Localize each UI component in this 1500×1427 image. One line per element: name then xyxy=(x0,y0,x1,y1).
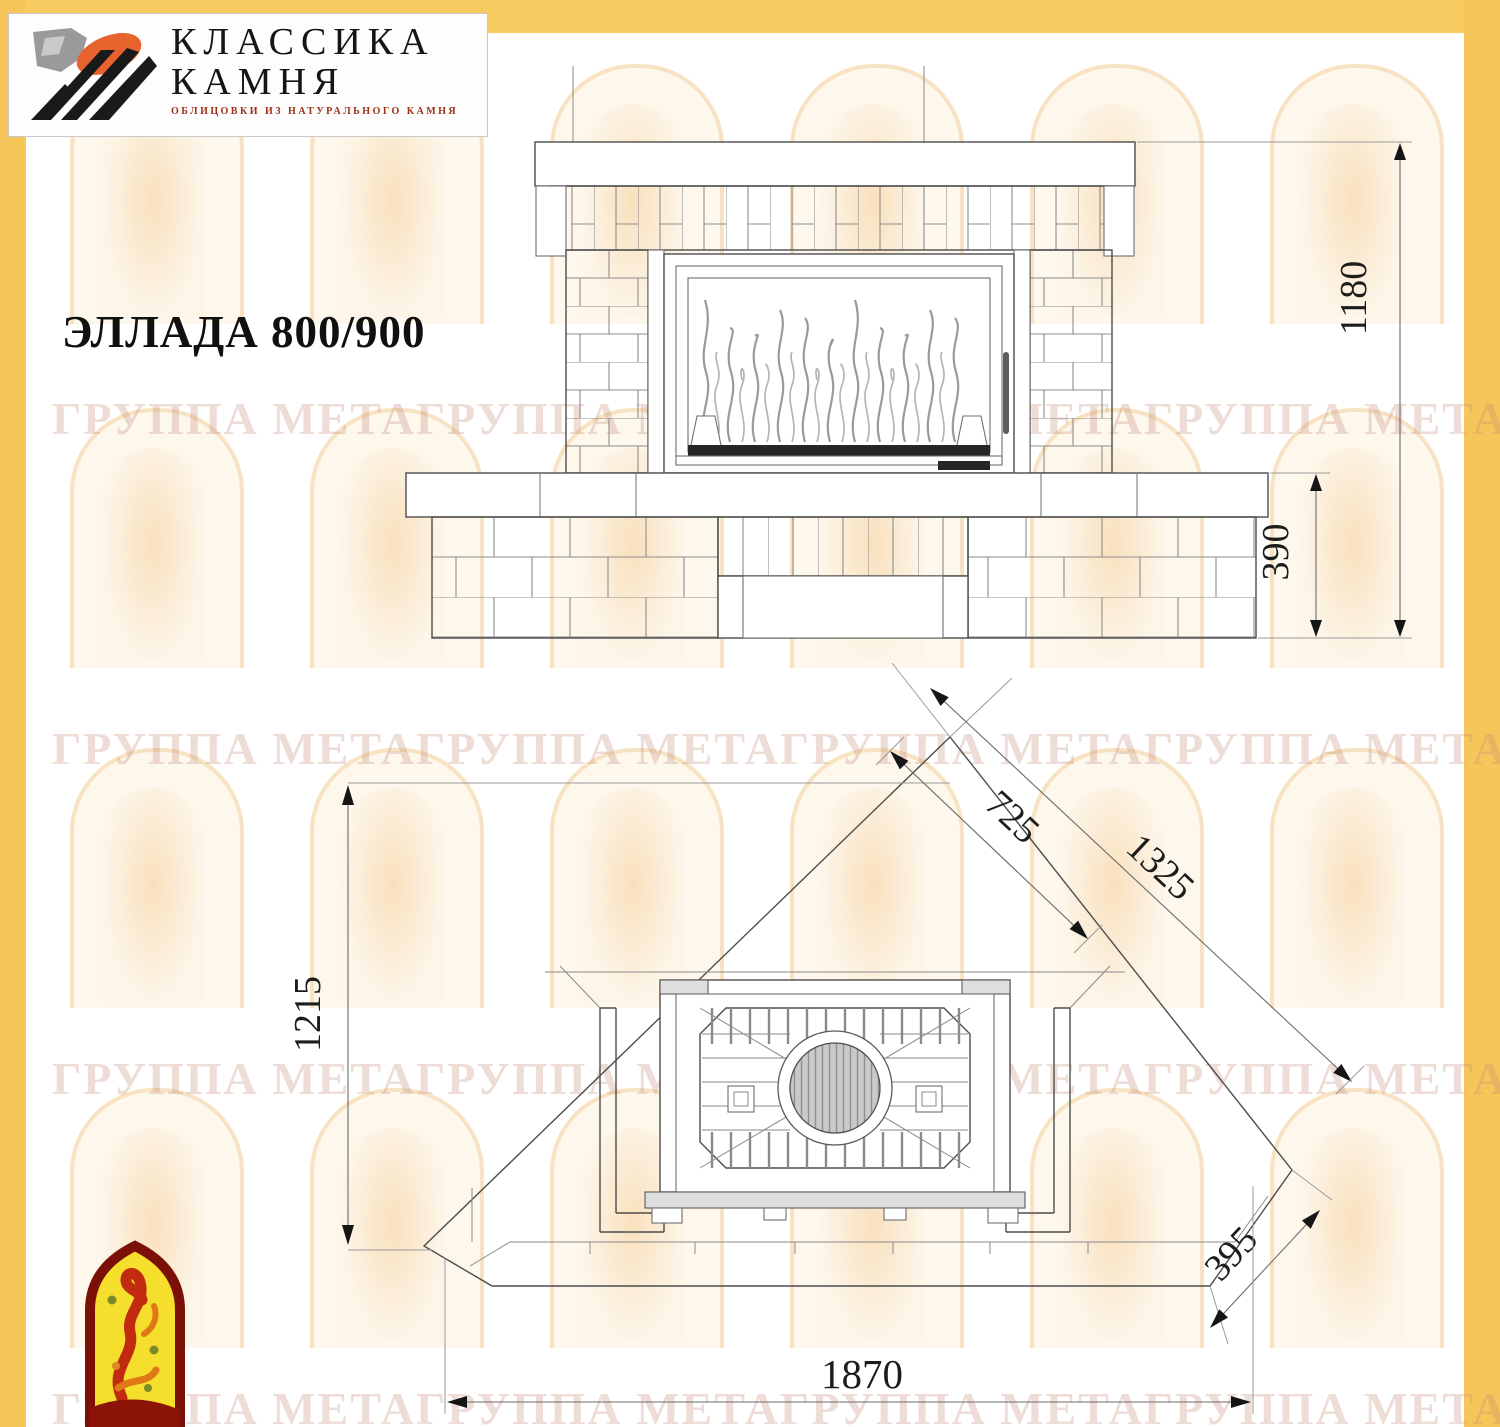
right-brick-column xyxy=(1030,250,1112,473)
front-elevation-drawing xyxy=(406,66,1268,638)
brand-logo: КЛАССИКА КАМНЯ ОБЛИЦОВКИ ИЗ НАТУРАЛЬНОГО… xyxy=(8,13,488,137)
brick-frieze xyxy=(550,186,1120,250)
left-brick-column xyxy=(566,250,648,473)
base-center-brick-band xyxy=(718,517,968,576)
dim-total-height: 1180 xyxy=(1333,261,1375,336)
insert-tab-left xyxy=(660,980,708,994)
plan-view-drawing xyxy=(424,737,1292,1286)
base-right-block xyxy=(968,517,1256,638)
insert-base-plate xyxy=(645,1192,1025,1208)
dim-insert-front: 725 xyxy=(977,782,1047,852)
fireplace-technical-drawing: 1180 390 xyxy=(0,0,1500,1427)
insert-tab-right xyxy=(962,980,1010,994)
dim-total-width: 1870 xyxy=(821,1351,903,1397)
insert-left-port xyxy=(728,1086,754,1112)
insert-foot xyxy=(764,1208,786,1220)
flue-outlet xyxy=(790,1043,880,1133)
insert-foot xyxy=(884,1208,906,1220)
insert-foot xyxy=(652,1208,682,1223)
dim-plan-depth: 1215 xyxy=(287,976,329,1052)
frieze-left-cap xyxy=(536,186,566,256)
left-jamb-strip xyxy=(648,250,664,473)
hearth-shelf xyxy=(406,473,1268,517)
meta-arch-logo xyxy=(82,1238,188,1427)
insert-foot xyxy=(988,1208,1018,1223)
frieze-right-cap xyxy=(1104,186,1134,256)
insert-right-port xyxy=(916,1086,942,1112)
base-left-block xyxy=(432,517,718,638)
grate-bar xyxy=(688,445,990,456)
page-title: ЭЛЛАДА 800/900 xyxy=(62,306,425,358)
dim-side-length: 1325 xyxy=(1118,826,1202,909)
right-jamb-strip xyxy=(1014,250,1030,473)
ash-drawer xyxy=(938,461,990,470)
dim-base-height: 390 xyxy=(1255,524,1297,581)
chimney-lines xyxy=(573,66,924,142)
page: ГРУППА МЕТАГРУППА МЕТАГРУППА МЕТАГРУППА … xyxy=(0,0,1500,1427)
door-handle xyxy=(1003,352,1009,434)
brand-name-line2: КАМНЯ xyxy=(171,62,481,102)
brand-subtitle: ОБЛИЦОВКИ ИЗ НАТУРАЛЬНОГО КАМНЯ xyxy=(171,106,481,117)
brand-name-line1: КЛАССИКА xyxy=(171,22,481,62)
mantel-shelf xyxy=(535,142,1135,186)
stone-icon xyxy=(31,28,163,124)
wood-niche xyxy=(743,576,943,638)
